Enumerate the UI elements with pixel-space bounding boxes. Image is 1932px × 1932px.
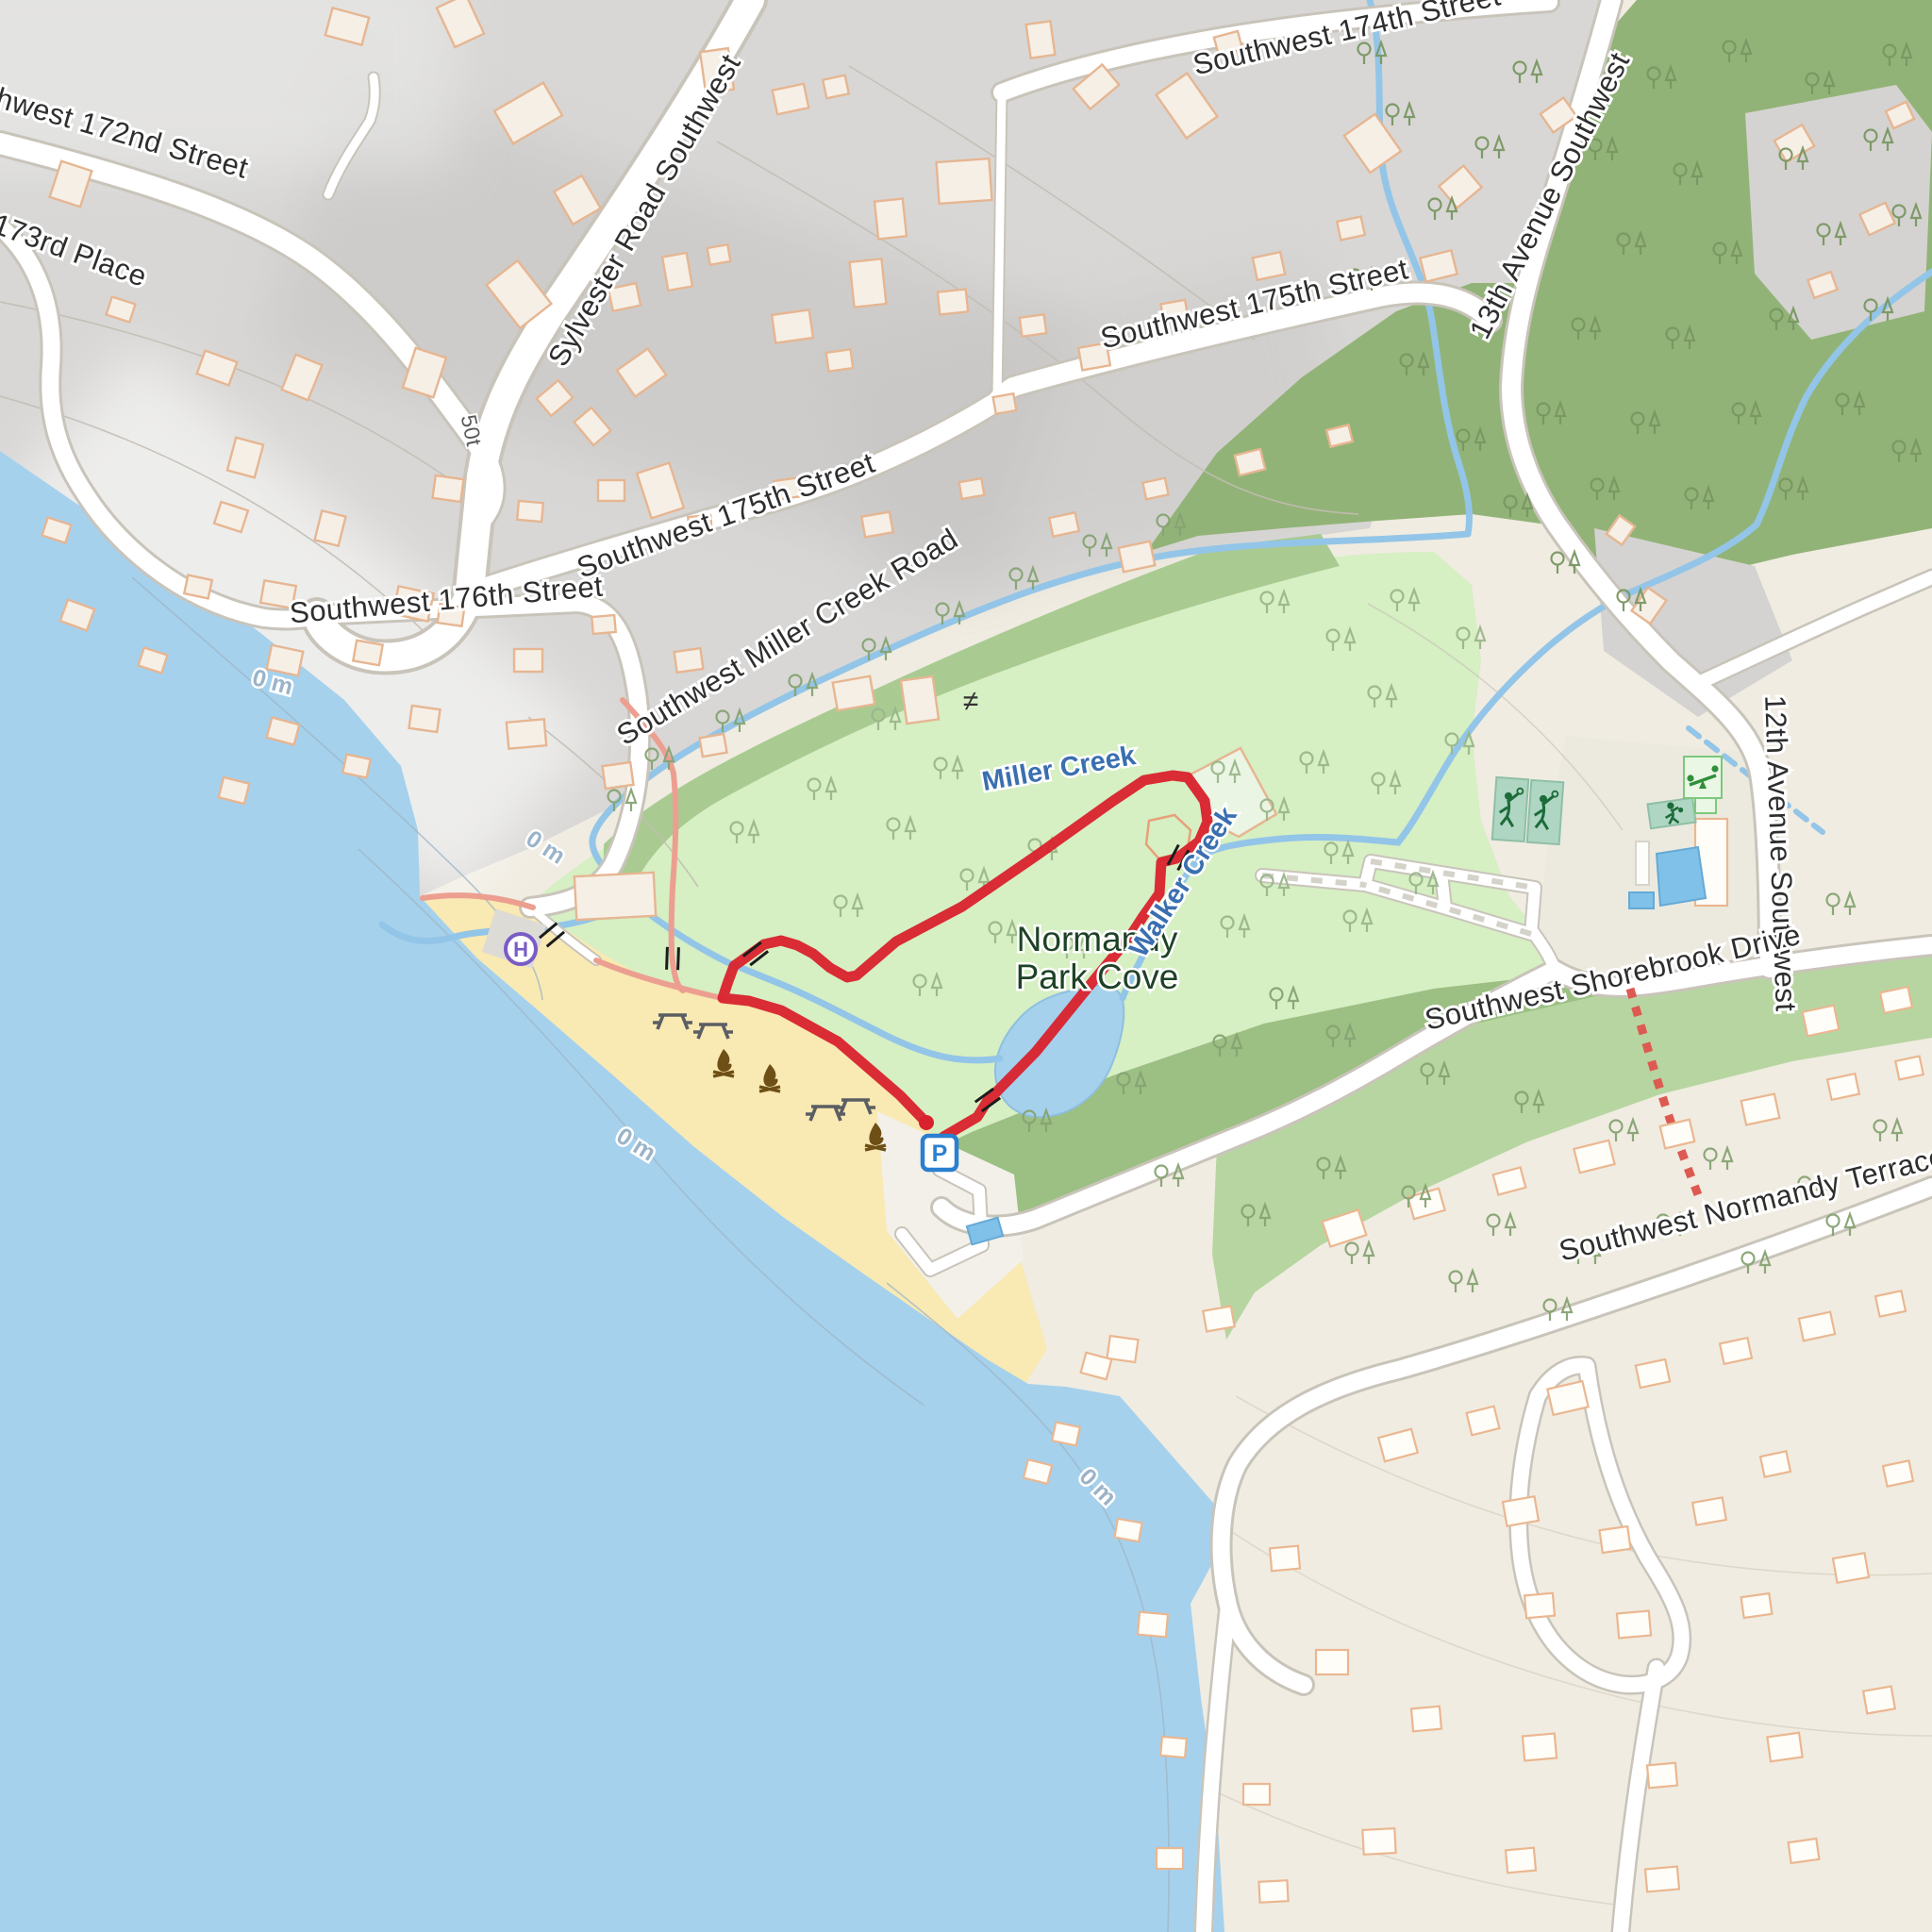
building bbox=[575, 873, 656, 920]
building bbox=[937, 158, 992, 204]
parking-letter: P bbox=[932, 1141, 948, 1167]
building bbox=[826, 349, 854, 371]
basketball-court-icon[interactable] bbox=[1647, 798, 1695, 828]
building-outline bbox=[1157, 1848, 1183, 1869]
building bbox=[773, 84, 809, 115]
building-outline bbox=[1599, 1526, 1630, 1553]
building-outline bbox=[1138, 1612, 1168, 1638]
building-outline bbox=[1258, 1880, 1288, 1903]
building-outline bbox=[1883, 1460, 1913, 1486]
building-outline bbox=[1524, 1593, 1555, 1619]
building bbox=[901, 676, 939, 724]
park-name-line2: Park Cove bbox=[1016, 958, 1179, 996]
building-outline bbox=[1863, 1687, 1895, 1714]
building-outline bbox=[1362, 1828, 1395, 1855]
building-outline bbox=[1316, 1650, 1348, 1674]
map-svg[interactable]: ≠HP Normandy Park Cove Southwest 172nd S… bbox=[0, 0, 1932, 1932]
building bbox=[1253, 252, 1285, 280]
building bbox=[184, 575, 212, 599]
building bbox=[602, 762, 633, 789]
building bbox=[938, 289, 968, 314]
building-outline bbox=[1827, 1074, 1859, 1100]
building bbox=[1049, 512, 1079, 536]
tennis-court-icon[interactable] bbox=[1492, 777, 1529, 841]
pool-small bbox=[1629, 892, 1654, 908]
building-outline bbox=[1645, 1867, 1679, 1892]
bus-stop-letter: H bbox=[513, 938, 528, 961]
bus-stop-icon[interactable]: H bbox=[506, 934, 536, 964]
building bbox=[507, 719, 546, 748]
tennis-court-icon[interactable] bbox=[1527, 780, 1564, 844]
building bbox=[514, 649, 542, 672]
building bbox=[342, 755, 371, 778]
building bbox=[517, 501, 543, 522]
building bbox=[662, 253, 692, 291]
building bbox=[699, 734, 726, 757]
building-outline bbox=[1243, 1784, 1270, 1805]
road-lane-174th bbox=[997, 92, 1002, 396]
building-outline bbox=[1617, 1611, 1651, 1639]
building-outline bbox=[1741, 1593, 1773, 1618]
building bbox=[850, 258, 887, 307]
building-outline bbox=[1833, 1553, 1869, 1583]
building-outline bbox=[1503, 1496, 1539, 1526]
building-outline bbox=[1760, 1451, 1790, 1476]
parking-icon[interactable]: P bbox=[923, 1136, 957, 1170]
building bbox=[874, 199, 907, 240]
building-outline bbox=[1270, 1546, 1300, 1572]
building bbox=[823, 75, 849, 99]
building bbox=[708, 244, 731, 265]
building-outline bbox=[1789, 1839, 1820, 1863]
building bbox=[1142, 478, 1168, 500]
building bbox=[772, 309, 813, 342]
building-outline bbox=[1636, 1359, 1670, 1388]
building bbox=[833, 676, 875, 710]
building-outline bbox=[1880, 987, 1912, 1013]
building bbox=[1337, 217, 1365, 241]
building bbox=[993, 393, 1017, 414]
building bbox=[1026, 21, 1056, 58]
building bbox=[432, 475, 463, 502]
building bbox=[408, 706, 440, 732]
building-outline bbox=[1411, 1707, 1441, 1732]
building-outline bbox=[1107, 1336, 1138, 1362]
building bbox=[598, 480, 625, 501]
gate-icon: ≠ bbox=[963, 686, 978, 717]
building-outline bbox=[1720, 1338, 1752, 1364]
building bbox=[591, 615, 615, 634]
pool bbox=[1657, 847, 1706, 906]
building-outline bbox=[1767, 1733, 1802, 1761]
pool-house bbox=[1636, 841, 1649, 885]
building-outline bbox=[1160, 1737, 1187, 1757]
building-outline bbox=[1647, 1763, 1677, 1789]
building bbox=[353, 641, 382, 666]
building-outline bbox=[1692, 1497, 1726, 1524]
building bbox=[1020, 314, 1047, 336]
route-end-marker[interactable] bbox=[919, 1115, 934, 1130]
building-outline bbox=[1875, 1291, 1906, 1316]
building-outline bbox=[1203, 1307, 1234, 1332]
building-outline bbox=[1895, 1057, 1924, 1080]
building-outline bbox=[1803, 1006, 1840, 1037]
building bbox=[959, 478, 985, 499]
building-outline bbox=[1523, 1734, 1557, 1761]
building bbox=[1119, 541, 1156, 573]
building-outline bbox=[1114, 1519, 1141, 1541]
map-canvas[interactable]: ≠HP Normandy Park Cove Southwest 172nd S… bbox=[0, 0, 1932, 1932]
building-outline bbox=[1052, 1423, 1080, 1446]
building bbox=[861, 512, 892, 538]
building bbox=[675, 648, 704, 673]
building-outline bbox=[1506, 1848, 1536, 1874]
